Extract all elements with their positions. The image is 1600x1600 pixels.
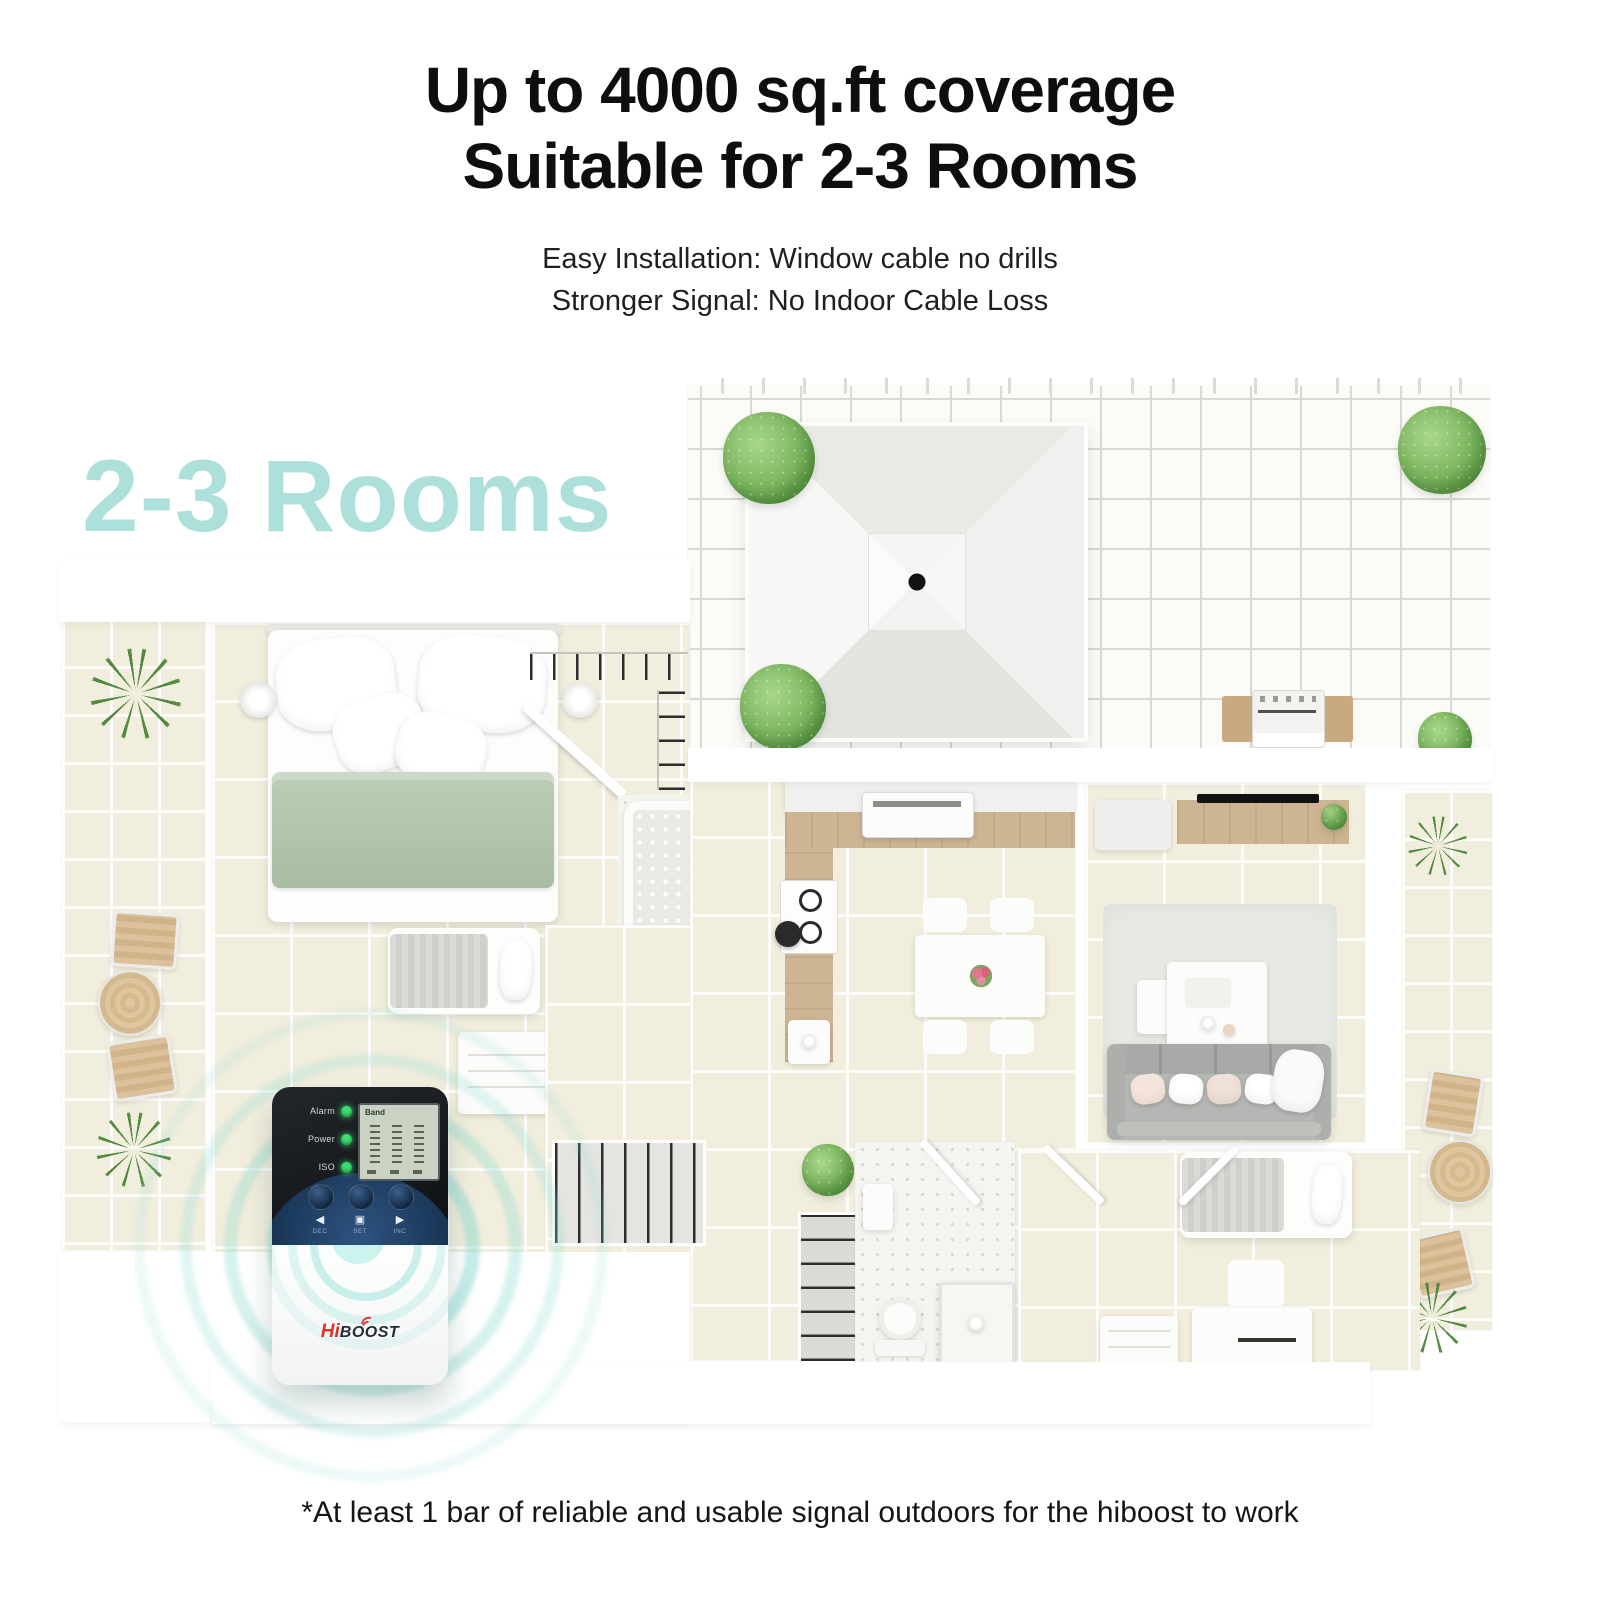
sofa-pillow [1129, 1072, 1167, 1106]
set-button-label: SET [348, 1228, 372, 1235]
inc-button-label: INC [388, 1228, 412, 1235]
page-title: Up to 4000 sq.ft coverage Suitable for 2… [0, 52, 1600, 204]
subtitle-line-2: Stronger Signal: No Indoor Cable Loss [0, 280, 1600, 322]
stove [780, 880, 838, 954]
table-flowers [968, 963, 994, 989]
toilet [875, 1340, 925, 1356]
inc-button [388, 1184, 414, 1210]
bed-blanket [272, 772, 554, 888]
device-body: HiBOOST [272, 1245, 448, 1385]
plant-bush [802, 1144, 854, 1196]
nightstand [562, 682, 598, 718]
bathroom-2 [855, 1142, 1015, 1368]
living-room [1085, 782, 1365, 1142]
led-label-alarm: Alarm [310, 1106, 335, 1116]
led-label-power: Power [308, 1134, 335, 1144]
balcony-chair [110, 910, 180, 970]
single-bed [388, 928, 540, 1014]
lcd-band-label: Band [365, 1108, 385, 1117]
rooms-count-label: 2-3 Rooms [82, 438, 612, 555]
title-line-2: Suitable for 2-3 Rooms [0, 128, 1600, 204]
title-line-1: Up to 4000 sq.ft coverage [0, 52, 1600, 128]
device-lcd-screen: Band [358, 1103, 440, 1181]
set-button [348, 1184, 374, 1210]
iso-led-icon [341, 1162, 352, 1173]
plant-bush [740, 664, 826, 750]
closet-hangers [657, 690, 685, 790]
select-icon: ▣ [348, 1213, 372, 1226]
terrace [688, 386, 1490, 758]
single-bed-blanket [390, 934, 488, 1008]
balcony-table [98, 970, 162, 1036]
door [919, 1139, 981, 1207]
second-bedroom [1018, 1150, 1420, 1370]
range-hood [862, 792, 974, 838]
marketing-graphic: Up to 4000 sq.ft coverage Suitable for 2… [0, 0, 1600, 1600]
bed-pillow [498, 939, 533, 1001]
closet-hangers [530, 652, 688, 680]
plant-spiky [90, 648, 182, 740]
dining-chair [990, 1020, 1034, 1054]
umbrella-center [908, 574, 925, 591]
hiboost-logo: HiBOOST [272, 1321, 448, 1343]
bed-pillow [1310, 1163, 1344, 1225]
alarm-led-icon [341, 1106, 352, 1117]
cabinet [1095, 800, 1171, 850]
wall [688, 748, 1492, 782]
left-arrow-icon: ◀ [308, 1213, 332, 1226]
right-arrow-icon: ▶ [388, 1213, 412, 1226]
logo-hi: Hi [321, 1321, 340, 1342]
cooking-pot [775, 921, 801, 947]
bbq-grill [1222, 690, 1353, 746]
dec-button-label: DEC [308, 1228, 332, 1235]
subtitle-line-1: Easy Installation: Window cable no drill… [0, 238, 1600, 280]
sofa [1107, 1044, 1331, 1140]
dining-chair [923, 898, 967, 932]
signal-waves-icon [358, 1314, 374, 1326]
page-subtitle: Easy Installation: Window cable no drill… [0, 238, 1600, 322]
dining-chair [923, 1020, 967, 1054]
sofa-pillow [1206, 1073, 1242, 1106]
sofa-pillow [1168, 1072, 1205, 1105]
toilet [879, 1298, 921, 1340]
device-control-panel: Alarm Power ISO Band [272, 1087, 448, 1245]
shower [939, 1282, 1015, 1368]
balcony-chair [106, 1033, 179, 1102]
second-bed [1180, 1152, 1352, 1238]
wardrobe-rack [798, 1212, 862, 1364]
terrace-railing [683, 378, 1495, 394]
wall [60, 560, 690, 622]
power-led-icon [341, 1134, 352, 1145]
signal-booster-device: Alarm Power ISO Band [272, 1087, 448, 1385]
master-bed [268, 630, 558, 922]
tv [1197, 794, 1319, 803]
balcony-chair [1421, 1068, 1484, 1138]
plant-bush [1398, 406, 1486, 494]
kitchen-sink [788, 1020, 830, 1064]
bed-blanket [1182, 1158, 1284, 1232]
bathroom-sink [863, 1184, 893, 1230]
nightstand [240, 682, 276, 718]
door [1042, 1144, 1105, 1205]
dining-chair [990, 898, 1034, 932]
footer-disclaimer: *At least 1 bar of reliable and usable s… [0, 1496, 1600, 1530]
dresser [1100, 1316, 1178, 1368]
desk [1192, 1308, 1312, 1366]
plant-bush [723, 412, 815, 504]
plant-bush [1321, 804, 1347, 830]
logo-boost: BOOST [340, 1324, 399, 1341]
balcony-table [1428, 1140, 1492, 1204]
desk-chair [1228, 1260, 1284, 1308]
plant-spiky [1408, 816, 1468, 876]
led-label-iso: ISO [319, 1162, 335, 1172]
dec-button [308, 1184, 334, 1210]
